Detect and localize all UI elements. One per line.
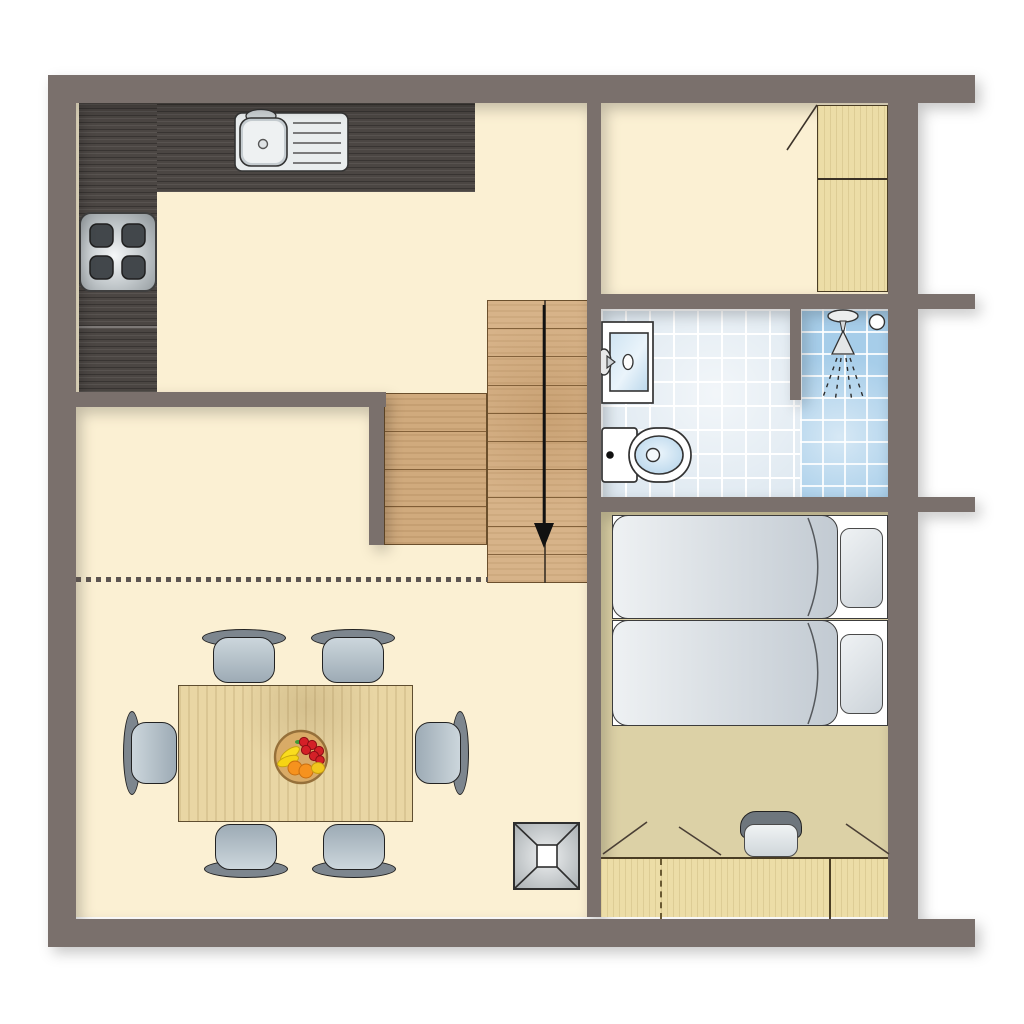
wall-top (48, 75, 975, 103)
wall-center-vertical (587, 103, 601, 917)
chair-seat (131, 722, 177, 784)
wall-bottom (48, 919, 975, 947)
dining-chair-right (411, 711, 469, 795)
dining-chair-left (123, 711, 181, 795)
chair-seat (215, 824, 277, 870)
chair-seat (415, 722, 461, 784)
wall-stub-bathroom-top (918, 294, 975, 309)
wall-stair-return (369, 392, 384, 545)
pear-icon (312, 763, 325, 774)
desk (601, 857, 888, 917)
fruit-bowl-icon (273, 729, 329, 785)
dining-chair-bottom-2 (312, 820, 396, 878)
shower-head-icon (822, 310, 885, 402)
chair-seat (323, 824, 385, 870)
ceiling-slope-lines (595, 815, 895, 860)
chair-seat (213, 637, 275, 683)
shower-drain-icon (870, 315, 885, 330)
wall-stub-bathroom-bottom (918, 497, 975, 512)
toilet-icon (602, 428, 691, 482)
wall-left (48, 75, 76, 947)
floor-plan (0, 0, 1024, 1024)
dining-chair-bottom-1 (204, 820, 288, 878)
door-swing-line (778, 98, 823, 156)
wall-kitchen-divider (48, 392, 386, 407)
duvet-fold-lines (601, 512, 888, 732)
dining-chair-top-2 (311, 629, 395, 687)
wall-bathroom-top (601, 294, 888, 309)
dining-chair-top-1 (202, 629, 286, 687)
washbasin-icon (601, 322, 653, 403)
bathroom-fixtures (601, 309, 888, 497)
skylight-icon (513, 822, 580, 890)
shower-spray-lines (822, 358, 864, 402)
desk-dashed-divider (660, 859, 662, 919)
headroom-dotted-line (76, 577, 488, 582)
desk-divider (829, 859, 831, 919)
wall-bathroom-bottom (601, 497, 888, 512)
wardrobe (817, 105, 888, 292)
wardrobe-top-section (818, 106, 887, 180)
chair-seat (322, 637, 384, 683)
